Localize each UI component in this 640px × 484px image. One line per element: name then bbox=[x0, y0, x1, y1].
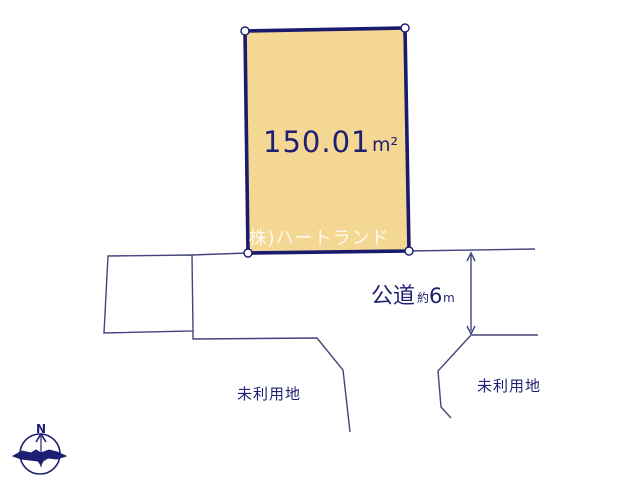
unused-land-label-left: 未利用地 bbox=[237, 385, 301, 403]
road-name-label: 公道 bbox=[371, 284, 415, 309]
plot-map-drawing: 150.01 m² (株)ハートランド 公道 約 6 m 未利用地 未利用地 N bbox=[0, 0, 640, 480]
unused-land-label-right: 未利用地 bbox=[477, 377, 541, 395]
road-width-value: 6 bbox=[429, 284, 442, 308]
right-unused-land-boundary bbox=[438, 334, 472, 418]
parcel-area-value: 150.01 bbox=[263, 125, 370, 159]
road-upper-edge-right bbox=[409, 249, 535, 251]
parcel-vertex-top-left bbox=[241, 27, 249, 35]
road-label: 公道 約 6 m bbox=[371, 284, 455, 309]
parcel-vertex-bottom-right bbox=[405, 247, 413, 255]
road-lower-edge-left-boundary bbox=[193, 331, 350, 432]
parcel-vertex-top-right bbox=[401, 24, 409, 32]
parcel-vertex-bottom-left bbox=[244, 249, 252, 257]
company-watermark: (株)ハートランド bbox=[240, 228, 389, 249]
left-neighbor-parcel-outline bbox=[104, 255, 193, 333]
road-approx-label: 約 bbox=[417, 290, 429, 305]
plot-map: 150.01 m² (株)ハートランド 公道 約 6 m 未利用地 未利用地 N bbox=[0, 0, 640, 480]
compass: N bbox=[13, 422, 66, 474]
compass-north-label: N bbox=[36, 422, 46, 436]
road-width-arrow bbox=[467, 253, 475, 334]
road-upper-edge-left bbox=[192, 253, 248, 255]
main-parcel: 150.01 m² (株)ハートランド bbox=[240, 24, 413, 257]
parcel-area-unit: m² bbox=[372, 134, 398, 156]
road-width-unit: m bbox=[443, 291, 455, 305]
